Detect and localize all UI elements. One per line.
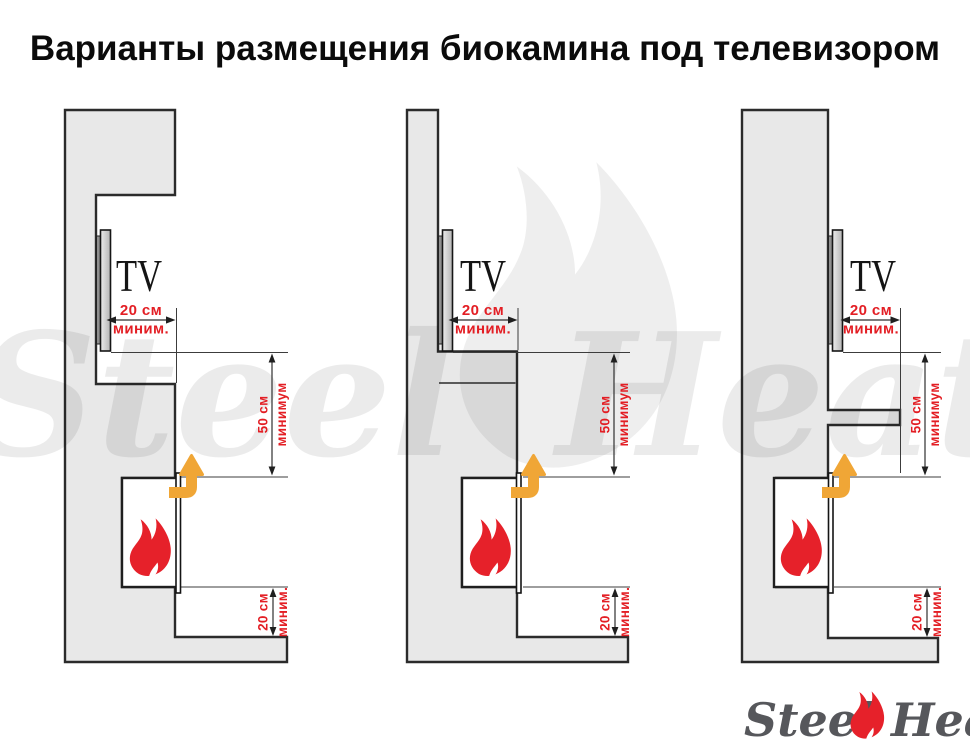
tv-label: TV (850, 250, 896, 301)
tv-label: TV (116, 250, 162, 301)
infographic-canvas: Варианты размещения биокамина под телеви… (0, 0, 970, 749)
page-title: Варианты размещения биокамина под телеви… (30, 29, 940, 68)
clearance-qualifier: минимум (616, 383, 631, 447)
clearance-value: 50 см (909, 396, 924, 434)
clearance-value: 20 см (598, 593, 613, 631)
logo-word-right: Heat (889, 693, 970, 747)
clearance-value: 20 см (910, 593, 925, 631)
clearance-value: 20 см (256, 593, 271, 631)
dim-firebox-floor-gap: 20 см миним. (598, 587, 633, 637)
watermark-word-left: Steel (0, 296, 456, 496)
tv-label: TV (460, 250, 506, 301)
tv-panel (101, 230, 111, 351)
diagram-svg: Варианты размещения биокамина под телеви… (0, 0, 970, 749)
dim-firebox-floor-gap: 20 см миним. (256, 587, 291, 637)
brand-logo: Steel Heat (744, 691, 970, 747)
clearance-qualifier: минимум (274, 383, 289, 447)
tv-panel (443, 230, 453, 351)
clearance-value: 20 см (850, 302, 892, 319)
clearance-qualifier: миним. (113, 321, 169, 338)
tv-panel (833, 230, 843, 351)
clearance-qualifier: минимум (927, 383, 942, 447)
clearance-value: 20 см (120, 302, 162, 319)
clearance-value: 50 см (598, 396, 613, 434)
clearance-qualifier: миним. (843, 321, 899, 338)
clearance-qualifier: миним. (929, 587, 944, 637)
clearance-qualifier: миним. (275, 587, 290, 637)
clearance-qualifier: миним. (455, 321, 511, 338)
dim-firebox-floor-gap: 20 см миним. (910, 587, 945, 637)
watermark-word-right: Heat (552, 296, 970, 496)
clearance-value: 50 см (256, 396, 271, 434)
clearance-value: 20 см (462, 302, 504, 319)
clearance-qualifier: миним. (617, 587, 632, 637)
